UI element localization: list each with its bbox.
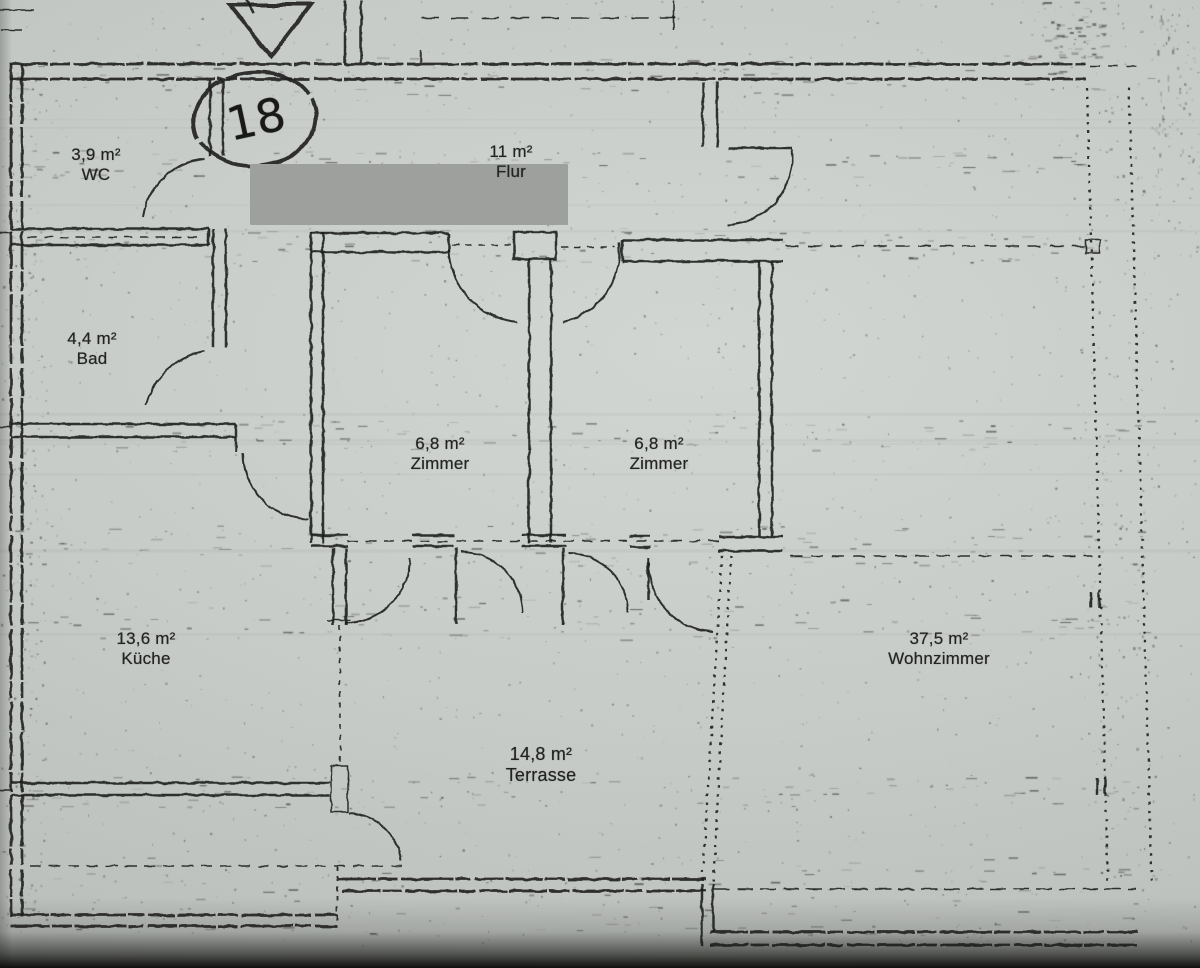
door-arc-zimmer1 (449, 249, 518, 322)
door-arc-wc (143, 159, 205, 217)
door-arc-bad (146, 351, 204, 405)
pillar (331, 766, 348, 812)
room-name: Flur (489, 162, 532, 182)
room-area: 6,8 m² (411, 434, 470, 454)
room-area: 3,9 m² (71, 145, 120, 165)
room-area: 11 m² (489, 142, 532, 162)
terrace-right-dotted (713, 556, 731, 886)
room-label-flur: 11 m² Flur (489, 142, 532, 182)
door-arc-terrace-4 (649, 563, 713, 632)
room-name: WC (71, 165, 120, 185)
floorplan-drawing (0, 0, 1200, 968)
room-name: Bad (67, 349, 116, 369)
entrance-arrow-icon (229, 5, 311, 57)
door-arc-zimmer2 (563, 243, 619, 322)
door-arc-entrance (727, 149, 792, 225)
room-label-bad: 4,4 m² Bad (67, 329, 116, 369)
room-label-zimmer-2: 6,8 m² Zimmer (630, 434, 689, 474)
window-mark (1086, 240, 1100, 253)
window-band-right (1129, 88, 1152, 886)
terrace-right-dotted (702, 556, 722, 886)
walls-layer (0, 0, 1152, 946)
room-name: Zimmer (411, 454, 470, 474)
wall-shaft-block (514, 232, 556, 259)
window-band-right (1087, 88, 1108, 886)
room-area: 14,8 m² (506, 744, 577, 765)
room-area: 6,8 m² (630, 434, 689, 454)
door-arc-terrace-2 (461, 552, 523, 613)
room-name: Terrasse (506, 765, 577, 786)
floorplan-scan: 3,9 m² WC 11 m² Flur 4,4 m² Bad 6,8 m² Z… (0, 0, 1200, 968)
room-area: 4,4 m² (67, 329, 116, 349)
room-label-zimmer-1: 6,8 m² Zimmer (411, 434, 470, 474)
room-area: 37,5 m² (888, 629, 990, 649)
door-arc-bottom-left (349, 813, 401, 861)
room-label-wc: 3,9 m² WC (71, 145, 120, 185)
door-arc-terrace-1 (345, 558, 410, 623)
room-label-kueche: 13,6 m² Küche (116, 629, 175, 669)
room-label-terrasse: 14,8 m² Terrasse (506, 744, 577, 786)
door-arc-terrace-3 (568, 553, 628, 613)
room-label-wohnzimmer: 37,5 m² Wohnzimmer (888, 629, 990, 669)
room-name: Wohnzimmer (888, 649, 990, 669)
photo-shadow-left (0, 0, 12, 968)
room-area: 13,6 m² (116, 629, 175, 649)
room-name: Zimmer (630, 454, 689, 474)
room-name: Küche (116, 649, 175, 669)
photo-shadow-bottom (0, 898, 1200, 968)
door-arc-kueche (243, 453, 309, 519)
